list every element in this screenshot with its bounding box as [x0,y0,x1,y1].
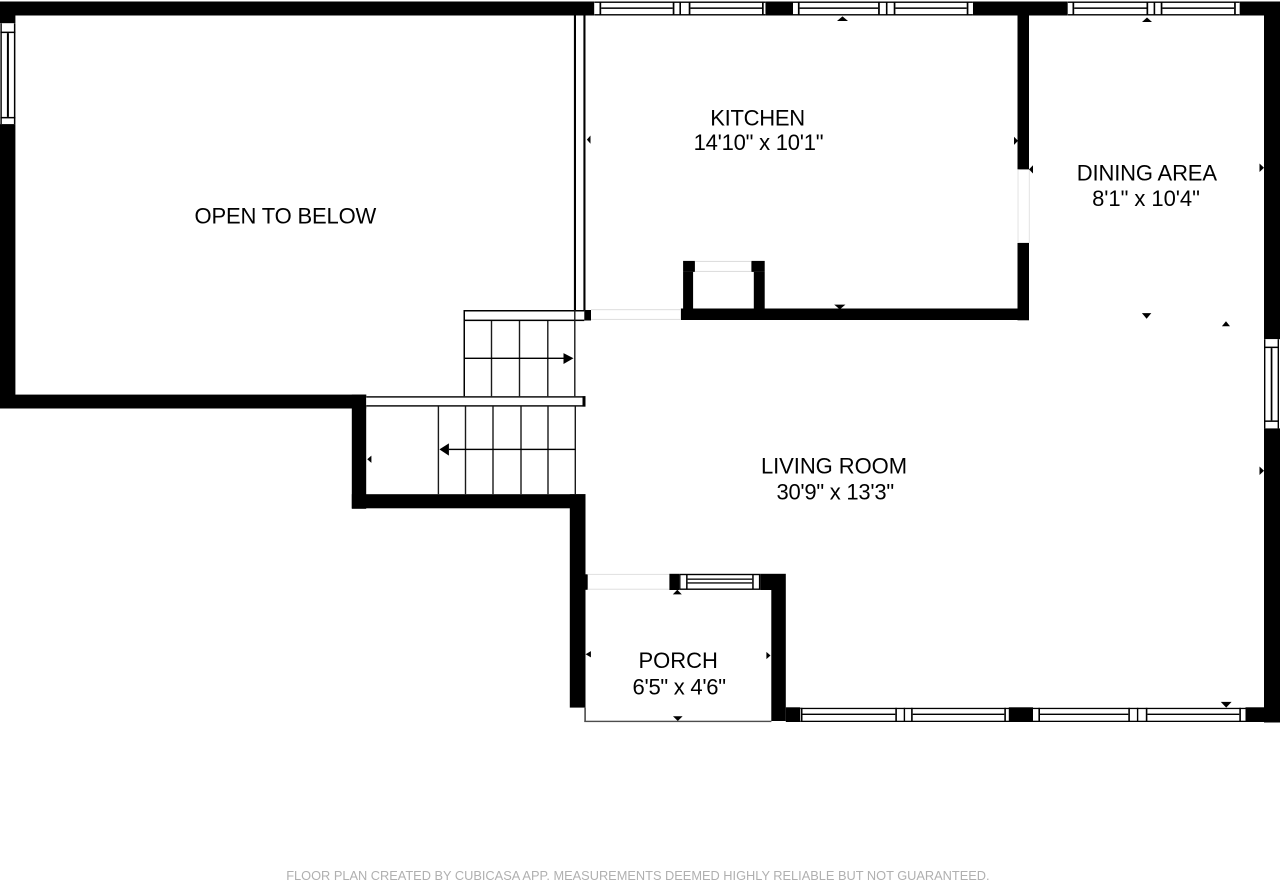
svg-text:6'5" x 4'6": 6'5" x 4'6" [633,675,727,700]
svg-text:OPEN TO BELOW: OPEN TO BELOW [195,203,377,228]
svg-text:LIVING ROOM: LIVING ROOM [761,454,907,479]
svg-text:FLOOR PLAN CREATED BY CUBICASA: FLOOR PLAN CREATED BY CUBICASA APP. MEAS… [286,868,989,883]
svg-text:14'10" x 10'1": 14'10" x 10'1" [694,130,824,155]
svg-text:DINING AREA: DINING AREA [1077,161,1218,186]
svg-text:KITCHEN: KITCHEN [710,105,805,130]
svg-text:PORCH: PORCH [639,648,718,673]
svg-text:30'9" x 13'3": 30'9" x 13'3" [776,480,894,505]
svg-text:8'1" x 10'4": 8'1" x 10'4" [1092,186,1200,211]
